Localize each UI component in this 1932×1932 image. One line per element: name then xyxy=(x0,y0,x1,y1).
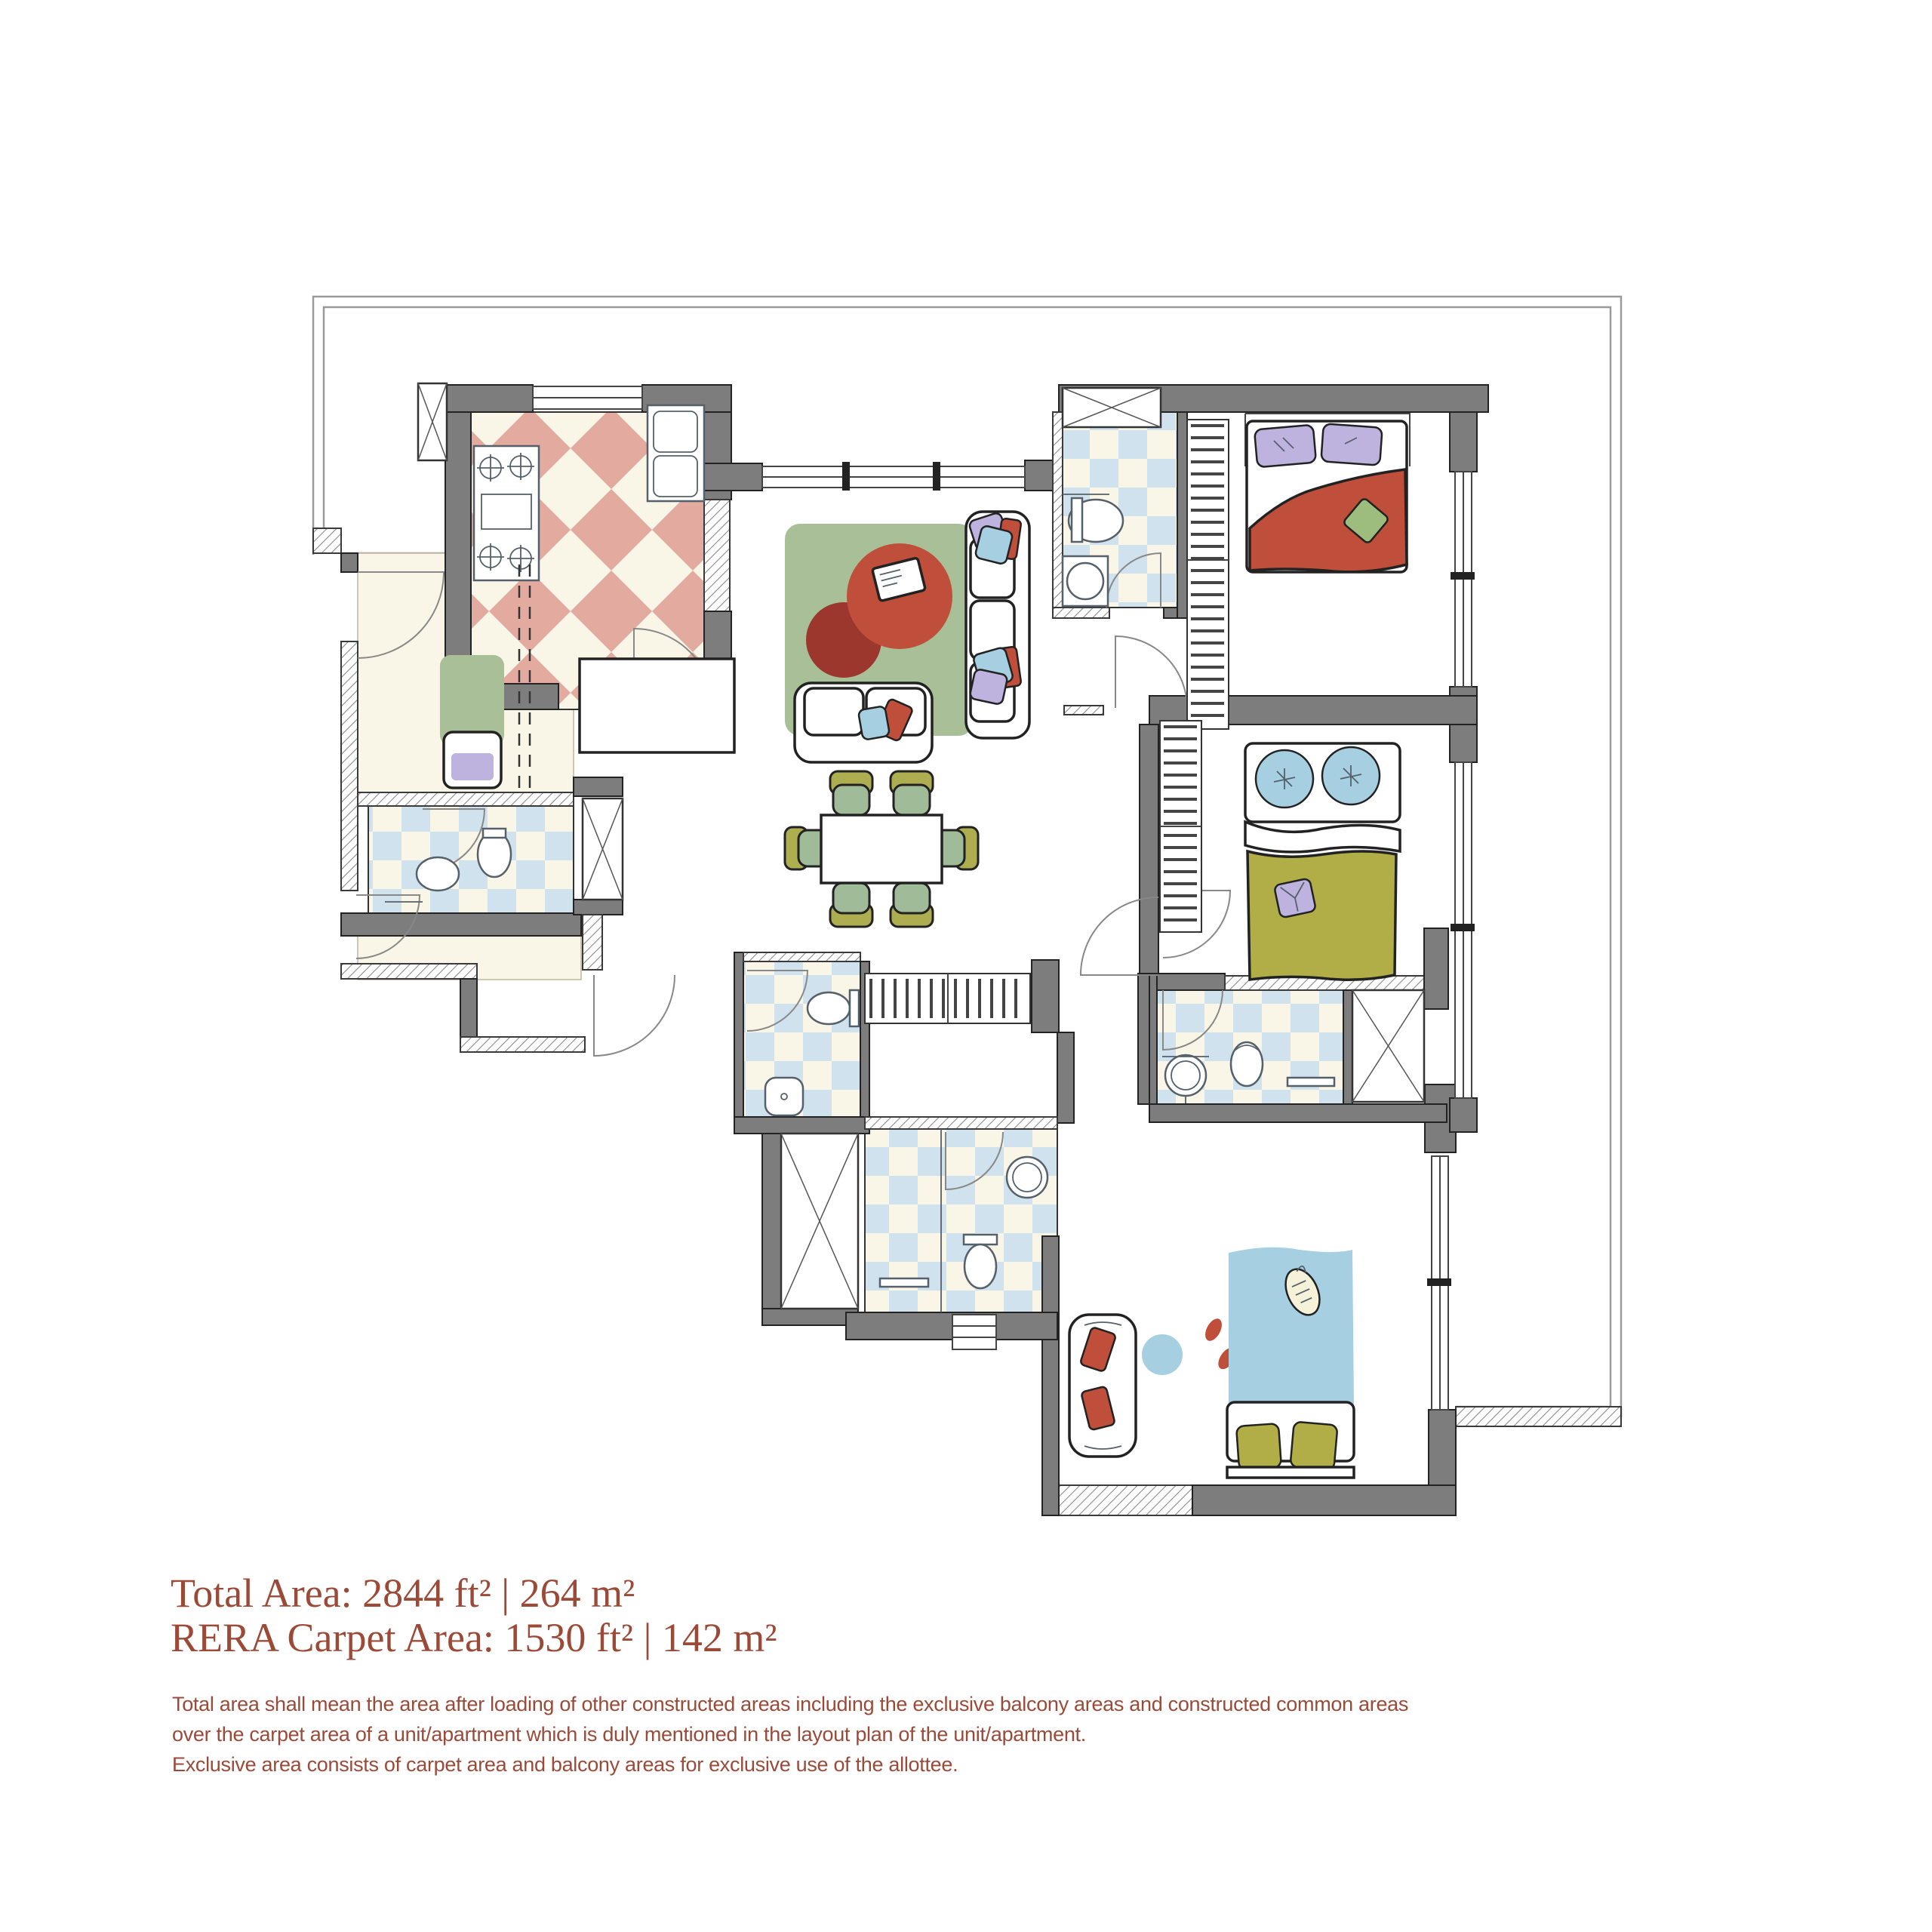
bedroom2 xyxy=(1245,743,1400,980)
bedroom2-bed-quilt xyxy=(1247,851,1396,980)
balcony-sill-left xyxy=(313,528,341,553)
armchair xyxy=(1069,1315,1136,1457)
utility-bed-blanket xyxy=(451,753,494,780)
stove xyxy=(474,446,539,580)
shower-shelf xyxy=(1287,1078,1334,1086)
utility-bathroom-floor xyxy=(368,806,574,913)
master-wardrobe xyxy=(1187,420,1229,729)
sheet-fold xyxy=(1245,822,1400,852)
shaft-utility xyxy=(583,798,623,900)
bedroom2-window xyxy=(1451,762,1475,1098)
floor-plan-page: Total Area: 2844 ft² | 264 m² RERA Carpe… xyxy=(0,0,1932,1932)
dining-chair xyxy=(891,883,933,927)
disclaimer-line-3: Exclusive area consists of carpet area a… xyxy=(172,1749,1408,1780)
clothes-item xyxy=(1274,878,1316,918)
shower-shelf xyxy=(880,1278,928,1287)
bedroom2-wardrobe xyxy=(1160,721,1201,932)
bedroom3-bed xyxy=(1227,1247,1354,1478)
dining-set xyxy=(785,771,978,927)
corridor-wardrobe xyxy=(865,974,1030,1023)
living-room-window xyxy=(762,462,1025,491)
master-bedroom xyxy=(1245,414,1410,572)
toilet-icon xyxy=(808,992,850,1024)
shaft-central xyxy=(781,1134,858,1309)
toilet-tank xyxy=(964,1235,997,1244)
kitchen-sink xyxy=(648,405,704,501)
dining-chair xyxy=(891,771,933,815)
kitchen-counter xyxy=(580,659,734,752)
disclaimer-line-1: Total area shall mean the area after loa… xyxy=(172,1689,1408,1719)
dining-chair xyxy=(830,883,872,927)
pillow xyxy=(1254,425,1316,468)
shaft-kitchen xyxy=(418,383,447,460)
sink-icon xyxy=(765,1078,803,1115)
dining-chair xyxy=(830,771,872,815)
toilet-tank xyxy=(483,829,506,838)
toilet-icon xyxy=(964,1244,996,1288)
disclaimer: Total area shall mean the area after loa… xyxy=(172,1689,1408,1780)
kitchen-window xyxy=(533,386,642,409)
dining-table xyxy=(821,815,942,883)
balcony-sill-bottom xyxy=(1456,1407,1621,1426)
living-room xyxy=(785,512,1029,762)
total-area-text: Total Area: 2844 ft² | 264 m² xyxy=(171,1571,777,1616)
bedroom3-threshold xyxy=(952,1315,996,1349)
rera-carpet-area-text: RERA Carpet Area: 1530 ft² | 142 m² xyxy=(171,1616,777,1660)
disclaimer-line-2: over the carpet area of a unit/apartment… xyxy=(172,1719,1408,1749)
sofa-loveseat xyxy=(795,683,932,762)
corridor-door xyxy=(594,975,675,1056)
toilet-icon xyxy=(1231,1042,1263,1086)
bedroom3-window xyxy=(1427,1156,1451,1410)
shaft-ensuite xyxy=(1352,990,1424,1102)
sink-icon xyxy=(417,857,459,891)
pouf xyxy=(1142,1334,1183,1375)
master-bedroom-window xyxy=(1451,472,1475,687)
pillow xyxy=(1321,423,1382,465)
area-summary: Total Area: 2844 ft² | 264 m² RERA Carpe… xyxy=(171,1571,777,1660)
sofa-three-seater xyxy=(966,512,1029,738)
sink-icon xyxy=(1067,563,1103,599)
toilet-tank xyxy=(850,990,859,1026)
bedroom3 xyxy=(1069,1247,1354,1478)
shaft-top-right xyxy=(1063,388,1161,427)
toilet-tank xyxy=(1072,498,1082,542)
